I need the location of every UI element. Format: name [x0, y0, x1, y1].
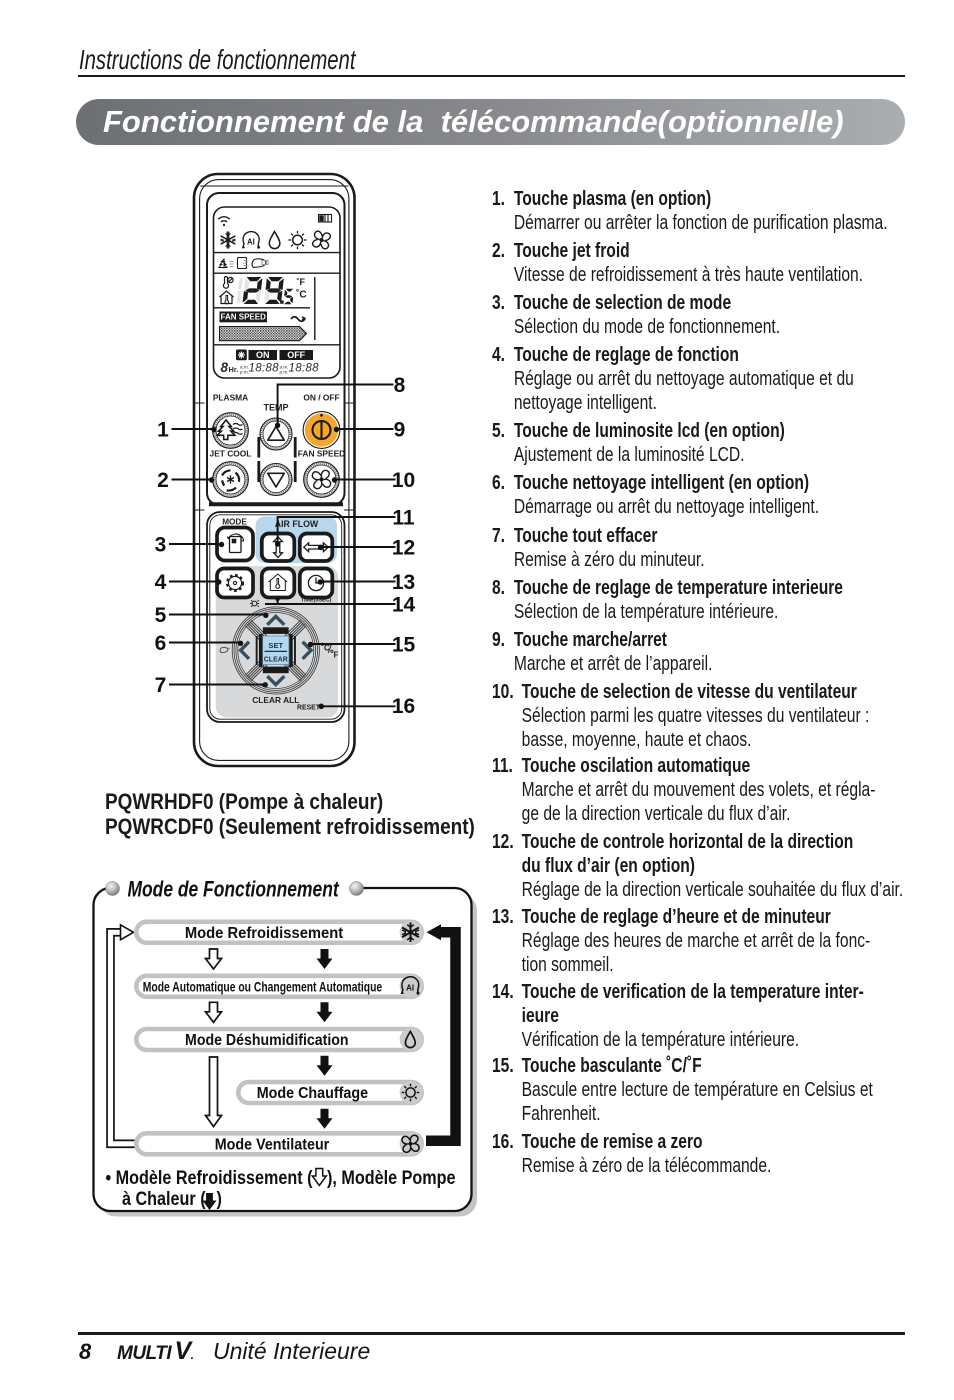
svg-text:ON: ON: [256, 350, 270, 360]
svg-text:8: 8: [221, 360, 229, 375]
svg-text:˚C: ˚C: [296, 289, 307, 301]
svg-text:RESET: RESET: [297, 704, 321, 711]
svg-text:14: 14: [392, 594, 416, 617]
svg-text:5: 5: [155, 604, 167, 627]
svg-text:Mode de Fonctionnement: Mode de Fonctionnement: [128, 878, 340, 902]
svg-text:4: 4: [155, 571, 167, 594]
svg-text:7: 7: [155, 674, 167, 697]
svg-text:Mode Refroidissement: Mode Refroidissement: [185, 925, 343, 942]
svg-text:TEMP: TEMP: [263, 403, 288, 413]
svg-text:à Chaleur (: à Chaleur (: [122, 1188, 206, 1210]
svg-text:18:88: 18:88: [249, 363, 280, 375]
svg-text:p.m.: p.m.: [280, 369, 289, 374]
svg-text:• Modèle Refroidissement (: • Modèle Refroidissement (: [106, 1167, 313, 1189]
svg-text:MODE: MODE: [222, 518, 247, 527]
svg-text:6: 6: [155, 632, 167, 655]
svg-text:8: 8: [394, 374, 406, 397]
svg-text:FAN SPEED: FAN SPEED: [298, 449, 345, 459]
svg-text:F: F: [334, 651, 339, 660]
svg-text:13: 13: [392, 571, 415, 594]
svg-text:AI: AI: [406, 983, 414, 992]
svg-text:PLASMA: PLASMA: [213, 393, 248, 403]
svg-text:SET: SET: [268, 641, 283, 650]
svg-text:3: 3: [155, 534, 167, 557]
svg-text:1: 1: [157, 419, 169, 442]
svg-text:9: 9: [394, 419, 406, 442]
svg-text:11: 11: [392, 507, 415, 530]
svg-text:Mode Déshumidification: Mode Déshumidification: [185, 1033, 349, 1050]
svg-text:FAN SPEED: FAN SPEED: [221, 313, 267, 322]
svg-text:CLEAR: CLEAR: [264, 657, 288, 664]
svg-text:Mode Ventilateur: Mode Ventilateur: [215, 1137, 330, 1154]
svg-text:AI: AI: [247, 238, 255, 247]
svg-text:CLEAR ALL: CLEAR ALL: [252, 695, 299, 705]
svg-text:Hr.: Hr.: [229, 365, 239, 374]
svg-text:Mode Chauffage: Mode Chauffage: [257, 1086, 368, 1103]
svg-text:12: 12: [392, 537, 415, 560]
svg-text:˚F: ˚F: [297, 277, 306, 287]
svg-text:JET COOL: JET COOL: [210, 449, 252, 459]
svg-text:2: 2: [157, 469, 169, 492]
svg-text:), Modèle Pompe: ), Modèle Pompe: [327, 1167, 456, 1189]
svg-text:ON / OFF: ON / OFF: [303, 393, 339, 403]
svg-text:18:88: 18:88: [289, 363, 320, 375]
svg-text:): ): [217, 1188, 222, 1210]
svg-text:AIR FLOW: AIR FLOW: [275, 519, 319, 529]
svg-text:15: 15: [392, 634, 416, 657]
svg-text:TIME(3SEC): TIME(3SEC): [301, 598, 332, 604]
svg-text:Mode Automatique ou Changement: Mode Automatique ou Changement Automatiq…: [143, 979, 383, 995]
svg-text:OFF: OFF: [287, 350, 305, 360]
svg-text:10: 10: [392, 469, 415, 492]
